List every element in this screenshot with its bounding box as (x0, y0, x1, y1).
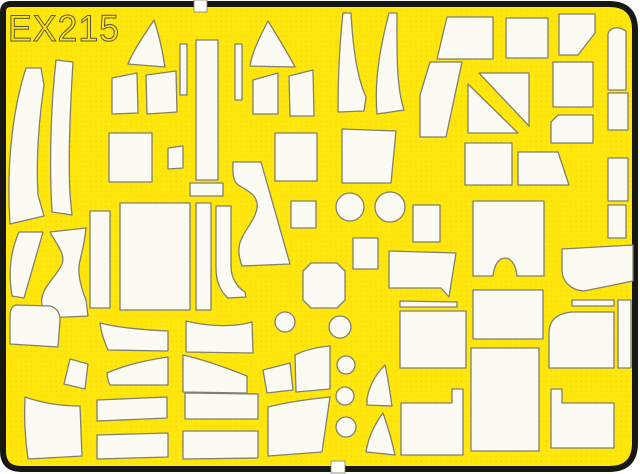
mask-rect-row2-b (183, 431, 258, 459)
mask-corner-cut-quad (551, 115, 593, 143)
mask-tall-rect (196, 40, 218, 180)
mask-wide-bar-1 (186, 321, 253, 353)
mask-small-hrect (190, 183, 223, 196)
mask-circle-small-0 (275, 312, 295, 332)
mask-thin-bar-right (572, 300, 614, 306)
mask-trapezoid-2 (146, 71, 177, 114)
mask-big-rect-bc (471, 348, 539, 451)
mask-big-quad-bc (268, 397, 330, 456)
sheet-svg: EX215 (0, 0, 640, 474)
bottom-edge-notch (331, 461, 345, 473)
sheet-code: EX215 (8, 8, 120, 49)
mask-edge-strip-3 (608, 158, 628, 201)
mask-edge-strip-1 (608, 28, 626, 90)
mask-round-quad (10, 305, 60, 347)
mask-big-square (120, 203, 190, 310)
mask-strip-c (90, 211, 110, 308)
mask-rect-center-a (473, 290, 543, 339)
mask-circle-large-1 (336, 193, 364, 221)
mask-thin-strip-2 (235, 44, 242, 100)
mask-rect-mid-top (275, 133, 317, 181)
mask-rect-row1-b (185, 393, 258, 419)
mask-circle-large-2 (375, 192, 405, 222)
mask-square-b (506, 18, 548, 58)
photoetch-sheet-scan: EX215 (0, 0, 640, 474)
mask-thin-bar-left (400, 301, 457, 307)
mask-trap-rect (342, 129, 396, 183)
mask-rect-row1-a (97, 397, 167, 421)
mask-rect-under-diag (465, 143, 512, 185)
mask-small-trap (168, 146, 183, 169)
mask-edge-strip-4 (608, 205, 626, 238)
mask-rect-above-square (109, 133, 152, 182)
mask-trapezoid-3 (253, 73, 278, 114)
mask-edge-strip-5 (618, 300, 631, 368)
mask-square-right (553, 62, 593, 107)
mask-circle-small-2 (337, 356, 355, 374)
mask-trapezoid-4 (289, 70, 314, 116)
mask-circle-small-3 (336, 387, 354, 405)
top-edge-notch (194, 0, 207, 12)
mask-strip-a (196, 203, 211, 310)
mask-circle-small-1 (329, 316, 351, 338)
mask-edge-strip-2 (608, 93, 628, 130)
mask-big-rect-left (400, 311, 466, 368)
mask-trapezoid-1 (112, 73, 138, 114)
mask-thin-strip-1 (180, 44, 187, 95)
mask-rect-row2-a (97, 433, 168, 459)
mask-diag-quad-a (437, 17, 493, 59)
mask-curved-strip-left (51, 60, 73, 215)
mask-small-square (291, 201, 316, 228)
mask-circle-small-4 (336, 417, 356, 437)
mask-big-quad-bl (25, 397, 82, 459)
mask-small-vrect (353, 238, 378, 269)
mask-big-rect-right (549, 312, 614, 368)
mask-rect-center-right (413, 205, 440, 242)
mask-octagon (303, 263, 345, 308)
mask-tilt-quad-3 (295, 346, 330, 392)
